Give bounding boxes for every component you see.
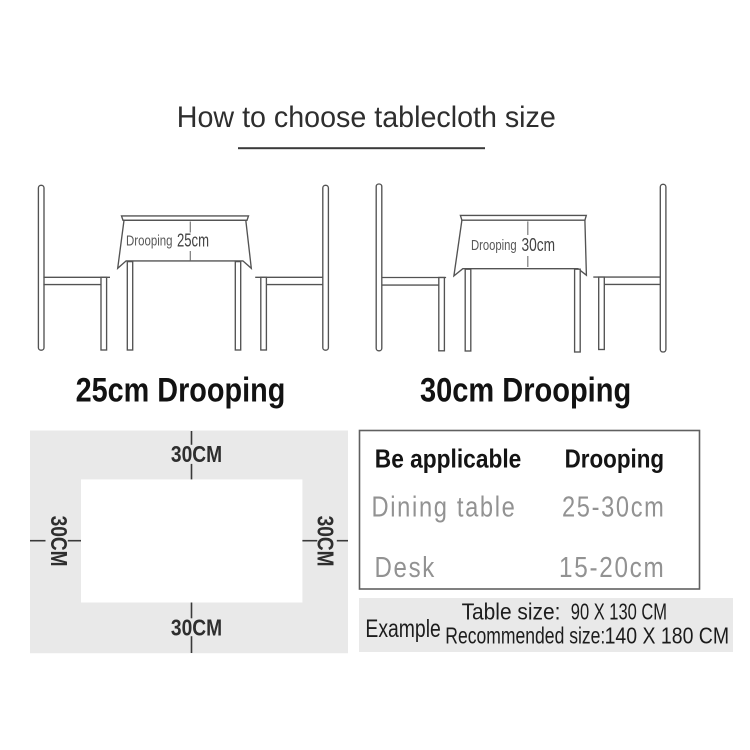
svg-text:Drooping: Drooping — [126, 233, 173, 249]
svg-text:15-20cm: 15-20cm — [559, 552, 666, 584]
svg-text:30CM: 30CM — [171, 441, 222, 467]
svg-text:25cm: 25cm — [177, 230, 209, 250]
svg-text:Desk: Desk — [375, 552, 437, 584]
svg-text:Recommended size:: Recommended size: — [445, 623, 605, 649]
svg-text:30CM: 30CM — [312, 516, 338, 567]
svg-text:Table size:: Table size: — [462, 599, 561, 625]
svg-text:30cm Drooping: 30cm Drooping — [420, 371, 631, 409]
svg-text:Drooping: Drooping — [565, 443, 665, 473]
svg-text:140 X 180 CM: 140 X 180 CM — [605, 623, 730, 649]
svg-text:How to choose tablecloth size: How to choose tablecloth size — [177, 101, 556, 134]
svg-text:30CM: 30CM — [46, 516, 72, 567]
svg-text:90 X 130 CM: 90 X 130 CM — [571, 599, 667, 625]
svg-text:Example: Example — [365, 615, 440, 643]
svg-text:25-30cm: 25-30cm — [562, 492, 666, 524]
svg-text:Drooping: Drooping — [471, 238, 517, 254]
svg-text:25cm Drooping: 25cm Drooping — [76, 371, 286, 409]
svg-text:Be applicable: Be applicable — [375, 443, 522, 473]
svg-text:Dining table: Dining table — [372, 492, 517, 524]
svg-text:30CM: 30CM — [171, 614, 222, 640]
svg-text:30cm: 30cm — [522, 235, 556, 255]
